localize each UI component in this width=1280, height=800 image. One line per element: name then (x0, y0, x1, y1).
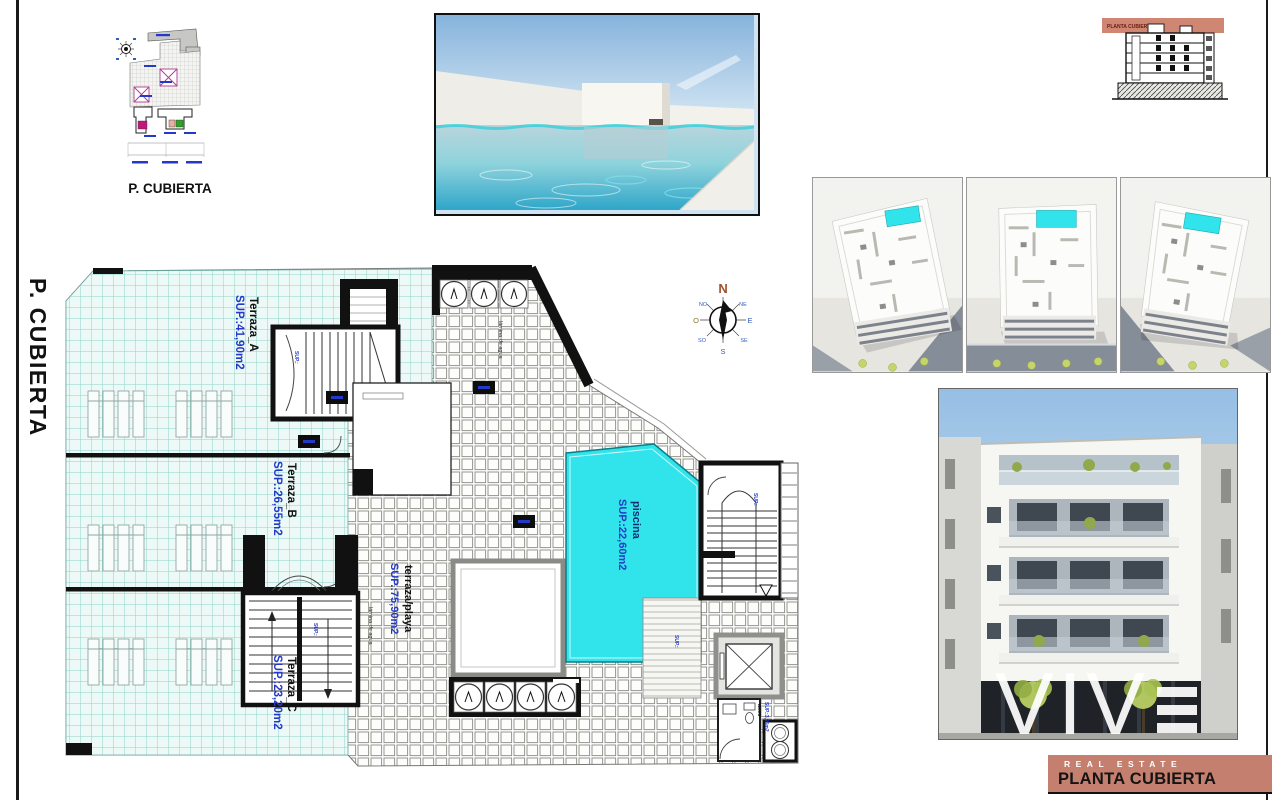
brand-tagline: REAL ESTATE (1064, 759, 1272, 769)
deck-note-1: lámina de agua (367, 607, 373, 646)
elevator-shaft (716, 635, 782, 697)
micro-label-stair3: SUP.: (752, 493, 758, 506)
compass-ne: NE (739, 302, 747, 308)
label-terraza-c-area: SUP.:23,20m2 (271, 655, 283, 730)
roof-room-top (353, 383, 451, 495)
label-terraza-a: Terraza_A (247, 297, 259, 352)
wood-deck-strip (643, 598, 701, 698)
roof-room-solarium (453, 561, 563, 675)
facade-storefront (981, 681, 1201, 733)
site-compass-icon (116, 38, 136, 60)
skylight-circles-bottom (449, 677, 581, 717)
micro-label-stair1: SUP.: (293, 351, 299, 364)
aerial-render-1 (812, 177, 963, 373)
label-terraza-playa-area: SUP.:75,90m2 (388, 563, 400, 634)
micro-label-stair2: SUP.: (312, 623, 318, 636)
sheet-name: PLANTA CUBIERTA (1058, 770, 1272, 789)
skylight-circles-top (440, 280, 528, 308)
label-aseo-area: SUP.:3,95m2 (763, 702, 769, 732)
banner-underline (1048, 792, 1272, 794)
site-skylight-2 (134, 87, 149, 102)
label-terraza-b: Terraza_B (285, 463, 297, 518)
compass-e: E (747, 316, 752, 325)
label-piscina-area: SUP.:22,60m2 (616, 499, 628, 570)
label-terraza-c: Terraza_C (285, 657, 297, 712)
label-aseo: aseo (756, 704, 762, 717)
section-drawing: PLANTA CUBIERTA (1096, 6, 1236, 108)
title-block-banner: REAL ESTATE PLANTA CUBIERTA (1048, 755, 1272, 792)
compass-n: N (718, 281, 727, 296)
sheet-side-title: P. CUBIERTA (24, 278, 51, 437)
compass-s: S (720, 347, 725, 356)
section-band-label: PLANTA CUBIERTA (1107, 24, 1154, 30)
aerial-render-2 (966, 177, 1117, 373)
sheet-border-left (16, 0, 19, 800)
micro-label-deck: SUP.: (673, 635, 679, 648)
compass-so: SO (698, 338, 707, 344)
main-floor-plan: N E S O NE SE SO NO Terraza_A SUP.:41,90… (58, 263, 818, 778)
compass-no: NO (699, 302, 708, 308)
deck-note-2: lámina de agua (497, 321, 503, 360)
staircase-right (701, 463, 798, 598)
site-plan-thumbnail (100, 25, 240, 181)
aerial-renders (812, 177, 1272, 373)
top-parapet-wall (436, 265, 532, 280)
wc-room (718, 699, 760, 761)
compass-o: O (693, 316, 699, 325)
pool-render-image (434, 13, 760, 216)
aerial-render-3 (1120, 177, 1271, 373)
label-terraza-a-area: SUP.:41,90m2 (233, 295, 245, 370)
section-ground (1118, 83, 1222, 99)
site-plan-caption: P. CUBIERTA (103, 181, 237, 196)
compass-rose-icon: N E S O NE SE SO NO (693, 281, 752, 356)
label-terraza-playa: terraza/playa (402, 565, 414, 633)
facade-render-image: VIV (938, 388, 1238, 740)
site-skylight-1 (160, 69, 177, 86)
terrace-divider-wall-1 (66, 453, 350, 458)
label-terraza-b-area: SUP.:26,55m2 (271, 461, 283, 536)
sheet-border-right (1266, 0, 1268, 800)
label-piscina: piscina (630, 501, 642, 540)
compass-se: SE (740, 338, 748, 344)
